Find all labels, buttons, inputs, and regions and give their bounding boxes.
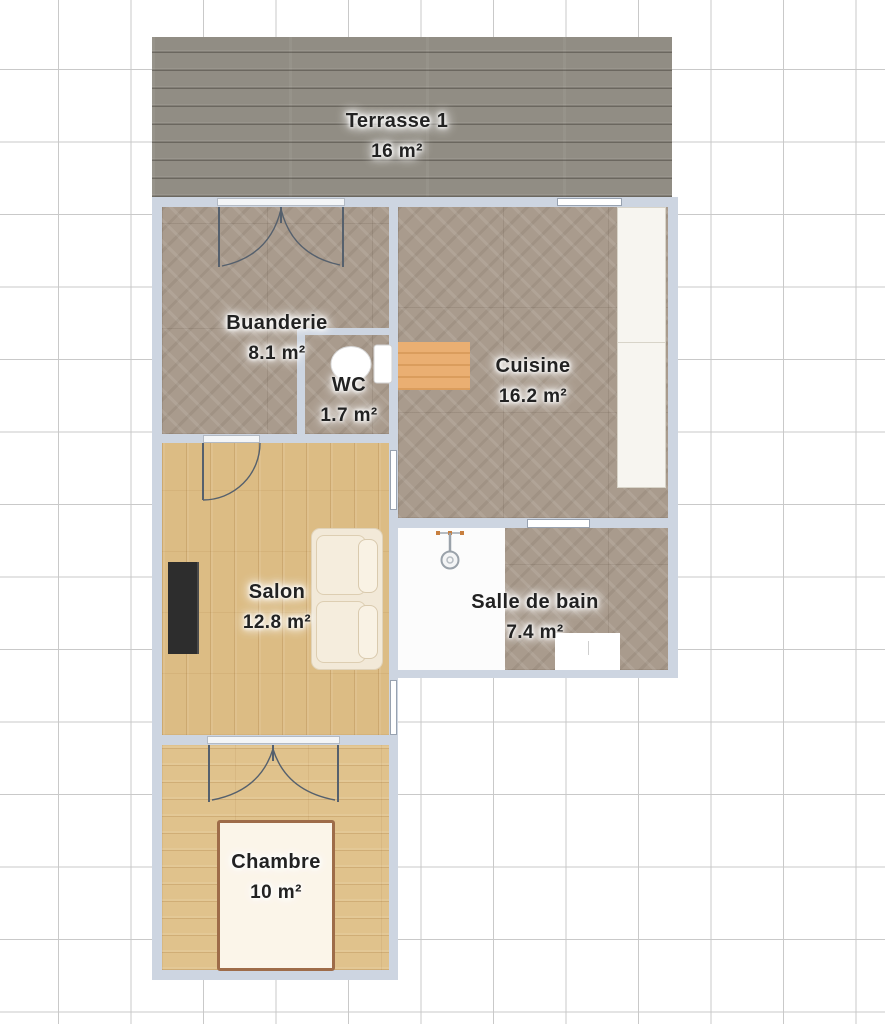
window-cuisine-top[interactable] [557,198,622,206]
room-area: 7.4 m² [471,622,598,644]
floor-plan-canvas: Terrasse 1 16 m² Buanderie 8.1 m² WC 1.7… [0,0,885,1024]
room-label-salle-de-bain: Salle de bain 7.4 m² [471,591,598,644]
sofa-back-bolster [358,605,378,659]
sofa-back-bolster [358,539,378,593]
room-label-chambre: Chambre 10 m² [231,851,321,904]
wall-chambre-bottom [152,970,398,980]
room-label-cuisine: Cuisine 16.2 m² [495,355,570,408]
room-area: 1.7 m² [320,405,377,427]
room-name: WC [320,374,377,396]
room-area: 10 m² [231,882,321,904]
window-cuisine-bain[interactable] [527,519,590,528]
room-name: Salon [243,581,311,603]
kitchen-counter[interactable] [617,207,666,488]
dining-table[interactable] [398,342,470,390]
window-salon-east[interactable] [390,680,397,735]
room-area: 16 m² [346,141,449,163]
room-area: 12.8 m² [243,612,311,634]
room-label-salon: Salon 12.8 m² [243,581,311,634]
wall-center-vertical [389,207,398,443]
room-label-buanderie: Buanderie 8.1 m² [226,312,327,365]
room-name: Cuisine [495,355,570,377]
sofa[interactable] [311,528,383,670]
room-label-wc: WC 1.7 m² [320,374,377,427]
door-opening-salon[interactable] [203,435,260,443]
room-name: Terrasse 1 [346,110,449,132]
counter-seam [618,342,665,343]
room-name: Salle de bain [471,591,598,613]
wall-right-upper [668,197,678,678]
tv-stand[interactable] [168,562,199,654]
door-opening-buanderie[interactable] [217,198,345,206]
room-label-terrasse: Terrasse 1 16 m² [346,110,449,163]
wall-buanderie-bottom [152,434,398,443]
window-salon-cuisine[interactable] [390,450,397,510]
door-opening-chambre[interactable] [207,736,340,744]
wall-bain-bottom [389,670,678,678]
room-area: 8.1 m² [226,343,327,365]
room-name: Buanderie [226,312,327,334]
room-name: Chambre [231,851,321,873]
wall-left [152,197,162,980]
room-area: 16.2 m² [495,386,570,408]
